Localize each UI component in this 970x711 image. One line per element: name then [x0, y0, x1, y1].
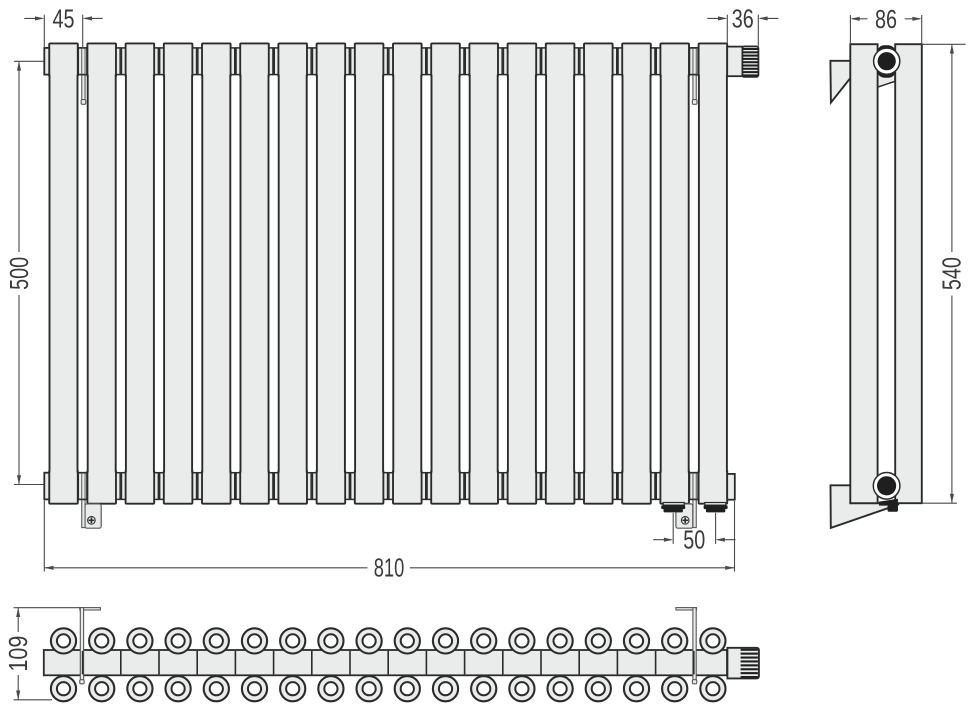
svg-text:109: 109 [3, 636, 33, 672]
svg-text:810: 810 [374, 553, 405, 583]
svg-text:540: 540 [937, 257, 967, 290]
svg-text:45: 45 [53, 4, 75, 34]
svg-text:36: 36 [732, 4, 754, 34]
svg-text:86: 86 [875, 4, 897, 34]
svg-text:500: 500 [4, 257, 34, 290]
svg-text:50: 50 [683, 525, 705, 555]
